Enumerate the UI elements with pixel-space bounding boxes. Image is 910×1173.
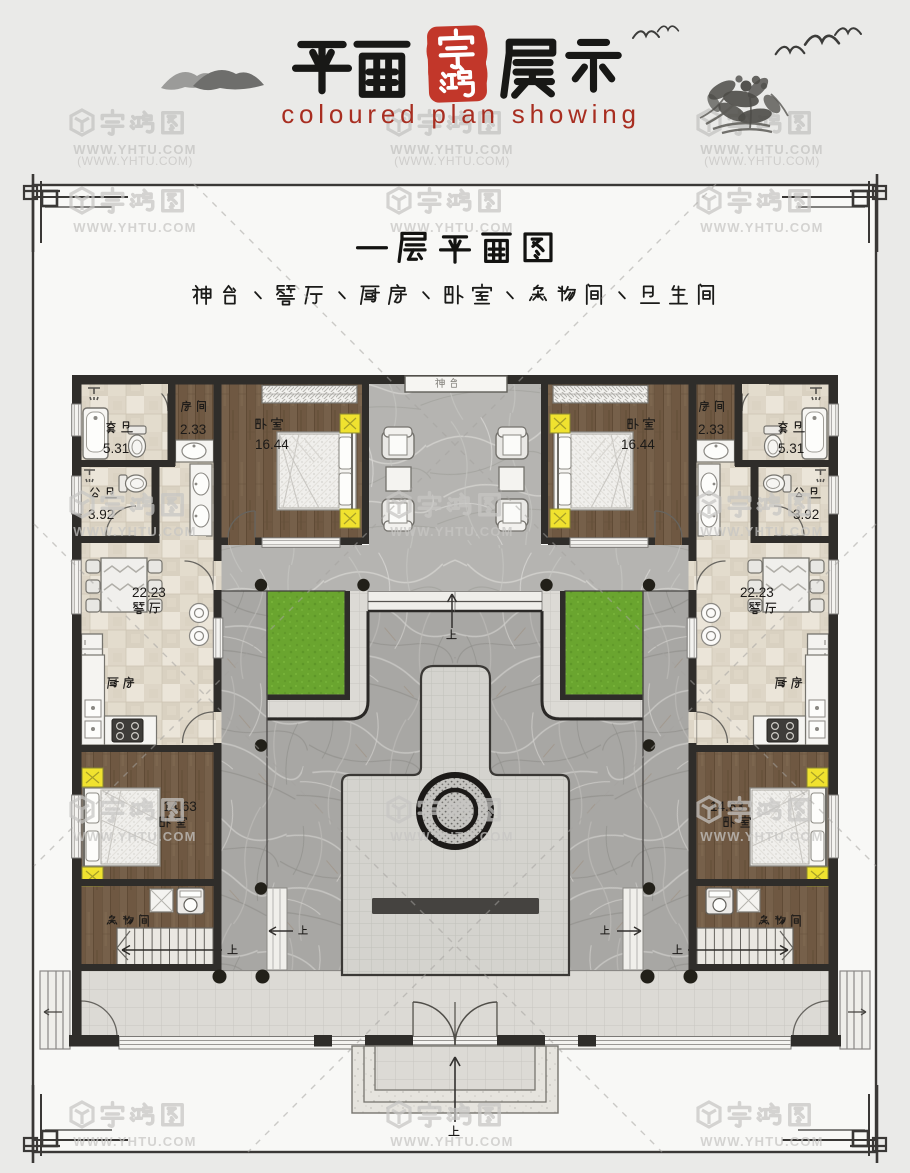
svg-text:5.31: 5.31	[103, 441, 129, 456]
svg-text:2.33: 2.33	[180, 422, 206, 437]
svg-text:5.31: 5.31	[778, 441, 804, 456]
svg-text:(WWW.YHTU.COM): (WWW.YHTU.COM)	[77, 154, 193, 168]
svg-text:(WWW.YHTU.COM): (WWW.YHTU.COM)	[394, 154, 510, 168]
svg-text:22.23: 22.23	[740, 585, 774, 600]
svg-text:16.44: 16.44	[255, 437, 289, 452]
svg-text:(WWW.YHTU.COM): (WWW.YHTU.COM)	[704, 154, 820, 168]
svg-text:2.33: 2.33	[698, 422, 724, 437]
svg-text:22.23: 22.23	[132, 585, 166, 600]
svg-text:16.44: 16.44	[621, 437, 655, 452]
svg-text:coloured plan showing: coloured plan showing	[281, 99, 641, 129]
